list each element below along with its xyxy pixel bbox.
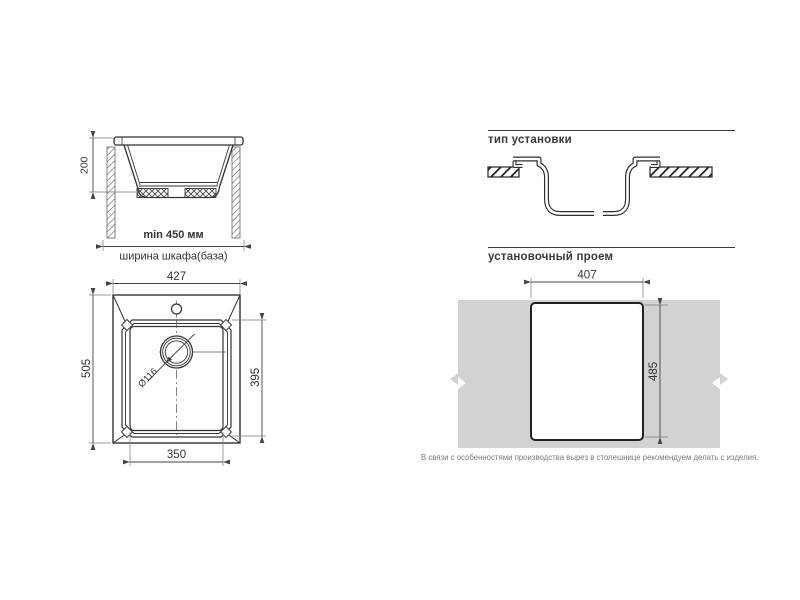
dim-overall-width: 427 <box>113 271 240 294</box>
sink-mount-profile <box>513 159 660 214</box>
dim-cabinet-width: min 450 мм ширина шкафа(база) <box>103 229 244 263</box>
sink-top-view-body: Ø116 <box>113 295 240 443</box>
installation-type-title: тип установки <box>488 134 572 146</box>
cabinet-wall-right <box>232 147 240 238</box>
overall-depth-label: 505 <box>81 359 93 378</box>
sink-foot-pad-left <box>137 189 168 198</box>
cutout-opening <box>531 303 643 440</box>
sink-cross-section <box>114 137 243 198</box>
overall-width-label: 427 <box>167 271 186 283</box>
cutout-width-label: 407 <box>577 270 596 282</box>
faucet-hole <box>172 304 182 314</box>
countertop-left <box>488 167 519 177</box>
technical-drawing-sheet: 200 min 450 мм ширина шкафа(база) тип ус… <box>0 0 800 600</box>
top-view-drawing: Ø116 427 505 395 350 <box>80 268 275 470</box>
dim-overall-depth: 505 <box>81 295 111 443</box>
depth-dim-label: 200 <box>80 156 91 174</box>
sink-rim <box>114 137 243 145</box>
cabinet-wall-left <box>107 147 115 238</box>
cutout-drawing: 407 485 <box>450 266 745 458</box>
dim-cutout-width: 407 <box>531 270 643 299</box>
production-note: В связи с особенностями производства выр… <box>421 453 758 462</box>
cabinet-caption: ширина шкафа(база) <box>119 251 227 263</box>
cutout-title: установочный проем <box>488 251 613 263</box>
cutout-height-label: 485 <box>648 362 660 381</box>
divider-top <box>488 130 735 131</box>
countertop-right <box>650 167 712 177</box>
sink-foot-pad-right <box>185 189 216 198</box>
bowl-width-label: 350 <box>167 449 186 461</box>
min-width-label: min 450 мм <box>143 229 203 241</box>
side-view-drawing: 200 min 450 мм ширина шкафа(база) <box>80 125 275 270</box>
divider-middle <box>488 247 735 248</box>
installation-type-drawing <box>485 152 738 235</box>
bowl-depth-label: 395 <box>250 368 262 387</box>
